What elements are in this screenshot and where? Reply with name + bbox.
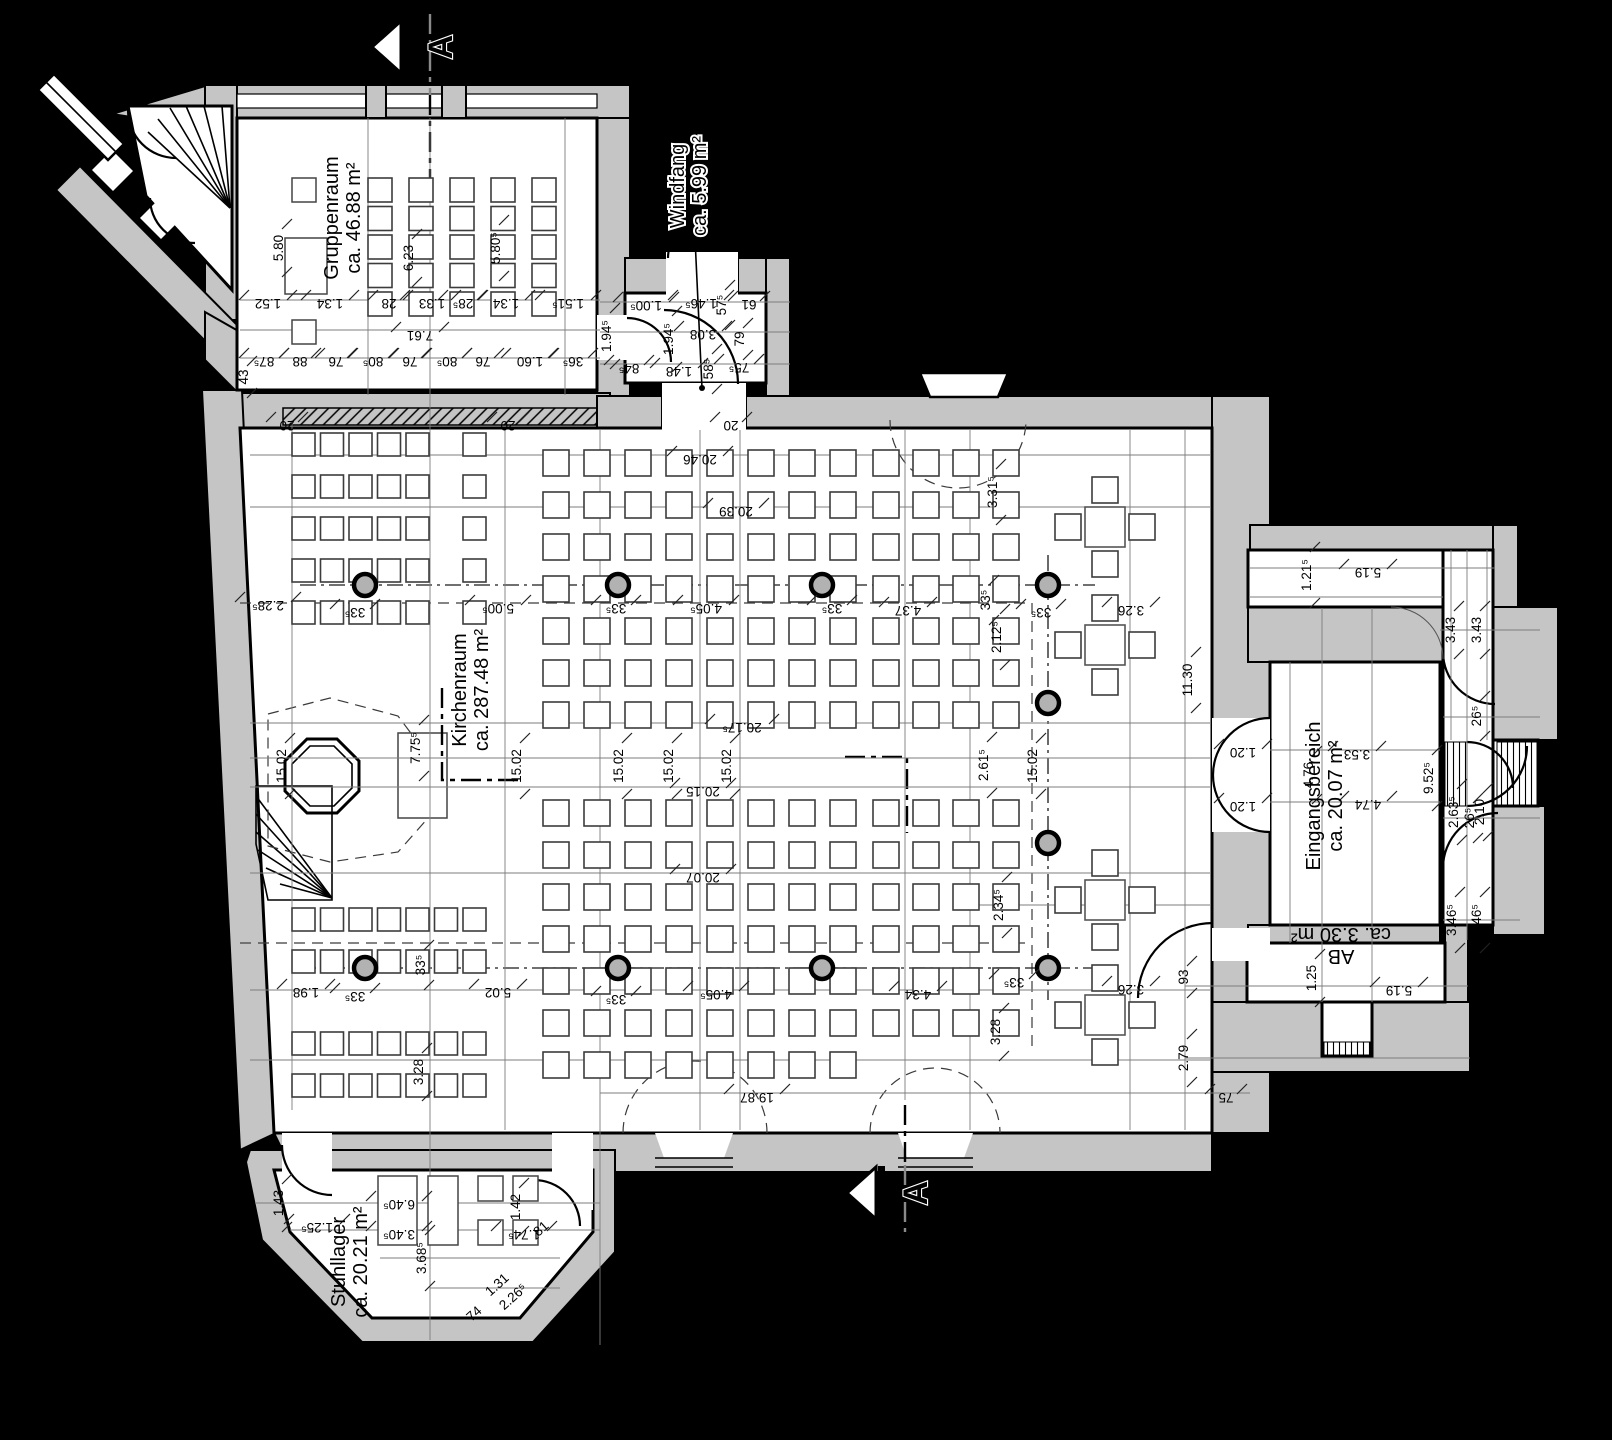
dimension-label: 76 bbox=[402, 354, 417, 369]
chair bbox=[321, 475, 344, 498]
dimension-label: 3.46⁵ bbox=[1444, 904, 1459, 936]
dimension-label: 2.34⁵ bbox=[991, 889, 1006, 921]
dimension-label: 1.20 bbox=[1230, 745, 1256, 760]
dimension-label: 36⁵ bbox=[563, 354, 584, 369]
chair bbox=[321, 1032, 344, 1055]
stacked-chairs bbox=[292, 178, 316, 202]
chair bbox=[993, 702, 1019, 728]
structural-column bbox=[354, 574, 376, 596]
chair bbox=[993, 842, 1019, 868]
chair bbox=[543, 660, 569, 686]
chair bbox=[584, 534, 610, 560]
table bbox=[1085, 880, 1125, 920]
chair bbox=[873, 702, 899, 728]
dimension-label: 7.75⁵ bbox=[408, 732, 423, 764]
chair bbox=[707, 618, 733, 644]
chair bbox=[953, 926, 979, 952]
section-marker-letter: A bbox=[422, 35, 460, 60]
dimension-label: 1.43 bbox=[271, 1190, 286, 1216]
chair bbox=[292, 475, 315, 498]
chair bbox=[625, 1052, 651, 1078]
chair bbox=[450, 207, 474, 231]
chair bbox=[789, 1010, 815, 1036]
dimension-label: 1.34 bbox=[492, 296, 519, 311]
dimension-label: 3.43 bbox=[1443, 617, 1458, 643]
chair bbox=[406, 601, 429, 624]
chair bbox=[1129, 887, 1155, 913]
chair bbox=[748, 842, 774, 868]
dimension-label: 57⁵ bbox=[714, 295, 729, 316]
chair bbox=[1129, 1002, 1155, 1028]
dimension-label: 3.08 bbox=[690, 327, 716, 342]
dimension-label: 3.68⁵ bbox=[414, 1242, 429, 1274]
chair bbox=[491, 264, 515, 288]
dimension-label: 5.80⁵ bbox=[488, 232, 503, 264]
chair bbox=[378, 908, 401, 931]
dimension-label: 15.02 bbox=[1025, 749, 1040, 783]
chair bbox=[913, 884, 939, 910]
stacked-chairs bbox=[292, 320, 316, 344]
chair bbox=[830, 618, 856, 644]
dimension-label: 1.48 bbox=[666, 364, 692, 379]
chair bbox=[707, 884, 733, 910]
dimension-label: 33⁵ bbox=[606, 601, 627, 616]
chair bbox=[321, 517, 344, 540]
chair bbox=[666, 1010, 692, 1036]
chair bbox=[830, 492, 856, 518]
structural-column bbox=[607, 574, 629, 596]
chair bbox=[625, 660, 651, 686]
chair bbox=[368, 235, 392, 259]
dimension-label: 33⁵ bbox=[1004, 975, 1025, 990]
structural-column bbox=[1037, 574, 1059, 596]
chair bbox=[666, 842, 692, 868]
dimension-label: 84⁵ bbox=[619, 361, 640, 376]
chair bbox=[913, 534, 939, 560]
chair bbox=[789, 534, 815, 560]
chair bbox=[406, 517, 429, 540]
chair bbox=[666, 1052, 692, 1078]
chair bbox=[953, 534, 979, 560]
chair bbox=[1055, 632, 1081, 658]
chair bbox=[463, 517, 486, 540]
structural-column bbox=[354, 957, 376, 979]
stacked-chairs bbox=[428, 1176, 458, 1245]
dimension-label: 79 bbox=[732, 331, 747, 346]
chair bbox=[406, 433, 429, 456]
chair bbox=[378, 433, 401, 456]
chair bbox=[666, 926, 692, 952]
chair bbox=[543, 800, 569, 826]
chair bbox=[748, 800, 774, 826]
chair bbox=[584, 842, 610, 868]
chair bbox=[543, 884, 569, 910]
chair bbox=[292, 433, 315, 456]
chair bbox=[463, 1074, 486, 1097]
dimension-label: 5.19 bbox=[1386, 983, 1412, 998]
chair bbox=[666, 576, 692, 602]
chair bbox=[748, 1052, 774, 1078]
chair bbox=[349, 1074, 372, 1097]
chair bbox=[1092, 924, 1118, 950]
chair bbox=[584, 926, 610, 952]
chair bbox=[913, 660, 939, 686]
chair bbox=[748, 576, 774, 602]
chair bbox=[435, 908, 458, 931]
chair bbox=[953, 702, 979, 728]
chair bbox=[748, 660, 774, 686]
dimension-label: 7.61 bbox=[407, 328, 433, 343]
dimension-label: 3.31⁵ bbox=[985, 476, 1000, 508]
dimension-label: 5.19 bbox=[1355, 565, 1381, 580]
dimension-label: 1.52 bbox=[255, 296, 281, 311]
chair bbox=[789, 884, 815, 910]
dimension-label: 1.94⁵ bbox=[661, 323, 676, 355]
dimension-label: 3.53 bbox=[1344, 747, 1370, 762]
chair bbox=[873, 800, 899, 826]
chair bbox=[378, 601, 401, 624]
dimension-label: 4.05⁵ bbox=[700, 987, 732, 1002]
chair bbox=[543, 618, 569, 644]
chair bbox=[1092, 1039, 1118, 1065]
chair bbox=[532, 178, 556, 202]
floor-plan-canvas: 5.806.235.80⁵1.521.34281.3328⁵1.341.51⁵7… bbox=[0, 0, 1612, 1440]
dimension-label: 1.42 bbox=[508, 1194, 523, 1220]
dimension-label: 4.05⁵ bbox=[690, 601, 722, 616]
room-eingangsbereich bbox=[1270, 662, 1440, 925]
dimension-label: 15.02 bbox=[611, 749, 626, 783]
chair bbox=[789, 618, 815, 644]
chair bbox=[406, 559, 429, 582]
dimension-label: 2.63⁵ bbox=[1446, 796, 1461, 828]
chair bbox=[435, 950, 458, 973]
chair bbox=[913, 842, 939, 868]
chair bbox=[378, 950, 401, 973]
chair bbox=[625, 618, 651, 644]
chair bbox=[666, 702, 692, 728]
dimension-label: 20 bbox=[279, 418, 294, 433]
chair bbox=[349, 908, 372, 931]
chair bbox=[1092, 850, 1118, 876]
chair bbox=[913, 800, 939, 826]
chair bbox=[748, 926, 774, 952]
dimension-label: 15.02 bbox=[719, 749, 734, 783]
chair bbox=[625, 800, 651, 826]
chair bbox=[625, 926, 651, 952]
dimension-label: 20 bbox=[723, 418, 738, 433]
chair bbox=[993, 576, 1019, 602]
chair bbox=[953, 842, 979, 868]
dimension-label: 88 bbox=[292, 354, 307, 369]
chair bbox=[993, 534, 1019, 560]
chair bbox=[789, 1052, 815, 1078]
structural-column bbox=[1037, 692, 1059, 714]
chair bbox=[321, 950, 344, 973]
dimension-label: 9.52⁵ bbox=[1421, 762, 1436, 794]
chair bbox=[873, 884, 899, 910]
chair bbox=[543, 576, 569, 602]
chair bbox=[873, 842, 899, 868]
stacked-chairs bbox=[478, 1220, 503, 1245]
dimension-label: 75 bbox=[1218, 1090, 1233, 1105]
chair bbox=[584, 884, 610, 910]
dimension-label: 15.02 bbox=[274, 749, 289, 783]
chair bbox=[748, 1010, 774, 1036]
dimension-label: 2.79 bbox=[1176, 1045, 1191, 1071]
chair bbox=[543, 450, 569, 476]
dimension-label: 76 bbox=[328, 354, 343, 369]
structural-column bbox=[607, 957, 629, 979]
dimension-label: 3.26 bbox=[1118, 982, 1144, 997]
table bbox=[1085, 625, 1125, 665]
chair bbox=[830, 842, 856, 868]
chair bbox=[406, 475, 429, 498]
dimension-label: 75⁵ bbox=[729, 360, 750, 375]
chair bbox=[532, 264, 556, 288]
chair bbox=[349, 517, 372, 540]
room-label-eingangsbereich: Eingangsbereichca. 20.07 m² bbox=[1303, 722, 1347, 871]
chair bbox=[543, 492, 569, 518]
chair bbox=[707, 576, 733, 602]
chair bbox=[1092, 551, 1118, 577]
chair bbox=[543, 968, 569, 994]
structural-column bbox=[811, 957, 833, 979]
chair bbox=[292, 559, 315, 582]
dimension-label: 1.00⁵ bbox=[630, 298, 662, 313]
chair bbox=[368, 264, 392, 288]
chair bbox=[993, 450, 1019, 476]
chair bbox=[292, 517, 315, 540]
dimension-label: 6.23 bbox=[401, 245, 416, 271]
chair bbox=[584, 450, 610, 476]
chair bbox=[830, 660, 856, 686]
chair bbox=[873, 576, 899, 602]
hatched-wall-strip bbox=[283, 408, 597, 425]
dimension-label: 4.34 bbox=[904, 987, 931, 1002]
dimension-label: 1.25 bbox=[1304, 965, 1319, 991]
chair bbox=[463, 475, 486, 498]
dimension-label: 33⁵ bbox=[413, 955, 428, 976]
entrance-mat bbox=[1324, 1042, 1370, 1058]
structural-column bbox=[1037, 957, 1059, 979]
chair bbox=[953, 618, 979, 644]
chair bbox=[584, 1052, 610, 1078]
chair bbox=[707, 1010, 733, 1036]
chair bbox=[789, 842, 815, 868]
dimension-label: 43 bbox=[236, 369, 251, 384]
dimension-label: 1.98 bbox=[293, 985, 319, 1000]
chair bbox=[666, 618, 692, 644]
chair bbox=[830, 1052, 856, 1078]
table bbox=[1085, 507, 1125, 547]
chair bbox=[1055, 514, 1081, 540]
chair bbox=[378, 1074, 401, 1097]
dimension-label: 20.15 bbox=[686, 784, 720, 799]
stacked-chairs bbox=[478, 1176, 503, 1201]
chair bbox=[1129, 514, 1155, 540]
chair bbox=[666, 534, 692, 560]
room-label-stuhllager: Stuhllagerca. 20.21 m² bbox=[328, 1206, 372, 1318]
dimension-label: 1.46⁵ bbox=[685, 296, 717, 311]
chair bbox=[292, 950, 315, 973]
chair bbox=[1129, 632, 1155, 658]
dimension-label: 1.60 bbox=[517, 354, 543, 369]
chair bbox=[1092, 965, 1118, 991]
room-label-gruppenraum: Gruppenraumca. 46.88 m² bbox=[321, 156, 365, 279]
chair bbox=[953, 492, 979, 518]
floor-plan-drawing: 5.806.235.80⁵1.521.34281.3328⁵1.341.51⁵7… bbox=[0, 0, 1612, 1440]
chair bbox=[873, 660, 899, 686]
chair bbox=[830, 702, 856, 728]
chair bbox=[830, 450, 856, 476]
chair bbox=[873, 618, 899, 644]
chair bbox=[830, 1010, 856, 1036]
chair bbox=[406, 1032, 429, 1055]
chair bbox=[707, 800, 733, 826]
chair bbox=[830, 800, 856, 826]
chair bbox=[292, 1032, 315, 1055]
chair bbox=[409, 207, 433, 231]
chair bbox=[953, 800, 979, 826]
chair bbox=[748, 884, 774, 910]
chair bbox=[789, 926, 815, 952]
dimension-label: 1.34 bbox=[316, 296, 343, 311]
dimension-label: 20.39 bbox=[719, 504, 753, 519]
chair bbox=[532, 235, 556, 259]
chair bbox=[625, 492, 651, 518]
chair bbox=[321, 601, 344, 624]
dimension-label: 33⁵ bbox=[606, 992, 627, 1007]
dimension-label: 6.40⁵ bbox=[383, 1197, 415, 1212]
chair bbox=[993, 800, 1019, 826]
dimension-label: 3.28 bbox=[411, 1059, 426, 1085]
room-label-windfang: Windfangca. 5.99 m² bbox=[667, 136, 711, 236]
dimension-label: 20.46 bbox=[683, 452, 717, 467]
chair bbox=[707, 660, 733, 686]
dimension-label: 20.17⁵ bbox=[722, 720, 761, 735]
chair bbox=[406, 908, 429, 931]
chair bbox=[463, 559, 486, 582]
dimension-label: 3.46⁵ bbox=[1469, 904, 1484, 936]
chair bbox=[666, 660, 692, 686]
chair bbox=[707, 1052, 733, 1078]
chair bbox=[543, 1010, 569, 1036]
dimension-label: 19.87 bbox=[740, 1090, 774, 1105]
chair bbox=[953, 576, 979, 602]
dimension-label: 33⁵ bbox=[345, 605, 366, 620]
chair bbox=[368, 207, 392, 231]
chair bbox=[953, 450, 979, 476]
chair bbox=[378, 475, 401, 498]
chair bbox=[913, 450, 939, 476]
chair bbox=[625, 534, 651, 560]
chair bbox=[349, 475, 372, 498]
chair bbox=[953, 660, 979, 686]
chair bbox=[463, 950, 486, 973]
dimension-label: 2.28⁵ bbox=[252, 598, 284, 613]
dimension-label: 20 bbox=[500, 418, 515, 433]
dimension-label: 80⁵ bbox=[363, 354, 384, 369]
chair bbox=[584, 702, 610, 728]
chair bbox=[543, 842, 569, 868]
chair bbox=[1092, 669, 1118, 695]
chair bbox=[913, 492, 939, 518]
chair bbox=[450, 264, 474, 288]
chair bbox=[625, 842, 651, 868]
chair bbox=[789, 660, 815, 686]
chair bbox=[666, 884, 692, 910]
chair bbox=[543, 534, 569, 560]
dimension-label: 1.20 bbox=[1230, 799, 1256, 814]
chair bbox=[873, 492, 899, 518]
chair bbox=[532, 207, 556, 231]
dimension-label: 26⁵ bbox=[1469, 706, 1484, 727]
section-marker-letter: A bbox=[897, 1181, 935, 1206]
chair bbox=[873, 450, 899, 476]
chair bbox=[873, 534, 899, 560]
chair bbox=[463, 908, 486, 931]
dimension-label: 28 bbox=[381, 296, 396, 311]
dimension-label: 93 bbox=[1176, 969, 1191, 984]
chair bbox=[543, 926, 569, 952]
chair bbox=[707, 926, 733, 952]
chair bbox=[830, 534, 856, 560]
chair bbox=[873, 968, 899, 994]
chair bbox=[435, 1032, 458, 1055]
chair bbox=[789, 800, 815, 826]
chair bbox=[292, 601, 315, 624]
chair bbox=[584, 492, 610, 518]
chair bbox=[789, 492, 815, 518]
chair bbox=[953, 968, 979, 994]
chair bbox=[450, 235, 474, 259]
structural-column bbox=[811, 574, 833, 596]
dimension-label: 5.80 bbox=[271, 235, 286, 261]
chair bbox=[748, 618, 774, 644]
chair bbox=[953, 884, 979, 910]
dimension-label: 5.02 bbox=[485, 985, 511, 1000]
chair bbox=[491, 178, 515, 202]
chair bbox=[321, 908, 344, 931]
chair bbox=[913, 618, 939, 644]
wall-bay bbox=[920, 373, 1008, 397]
chair bbox=[463, 433, 486, 456]
chair bbox=[1092, 477, 1118, 503]
chair bbox=[1092, 595, 1118, 621]
section-marker-bar bbox=[878, 1166, 885, 1220]
chair bbox=[584, 1010, 610, 1036]
chair bbox=[1055, 1002, 1081, 1028]
chair bbox=[543, 702, 569, 728]
dimension-label: 26⁵ bbox=[1462, 808, 1477, 829]
chair bbox=[292, 908, 315, 931]
dimension-label: 3.26 bbox=[1118, 603, 1144, 618]
dimension-label: 80⁵ bbox=[437, 354, 458, 369]
dimension-label: 33⁵ bbox=[1031, 605, 1052, 620]
dimension-label: 3.28 bbox=[988, 1019, 1003, 1045]
dimension-label: 1.21⁵ bbox=[1299, 559, 1314, 591]
chair bbox=[830, 926, 856, 952]
dimension-label: 2.61⁵ bbox=[976, 749, 991, 781]
chair bbox=[666, 800, 692, 826]
chair bbox=[349, 433, 372, 456]
dimension-label: 15.02 bbox=[509, 749, 524, 783]
dimension-label: 4.37 bbox=[895, 603, 921, 618]
chair bbox=[435, 1074, 458, 1097]
chair bbox=[321, 433, 344, 456]
chair bbox=[913, 1010, 939, 1036]
chair bbox=[666, 968, 692, 994]
